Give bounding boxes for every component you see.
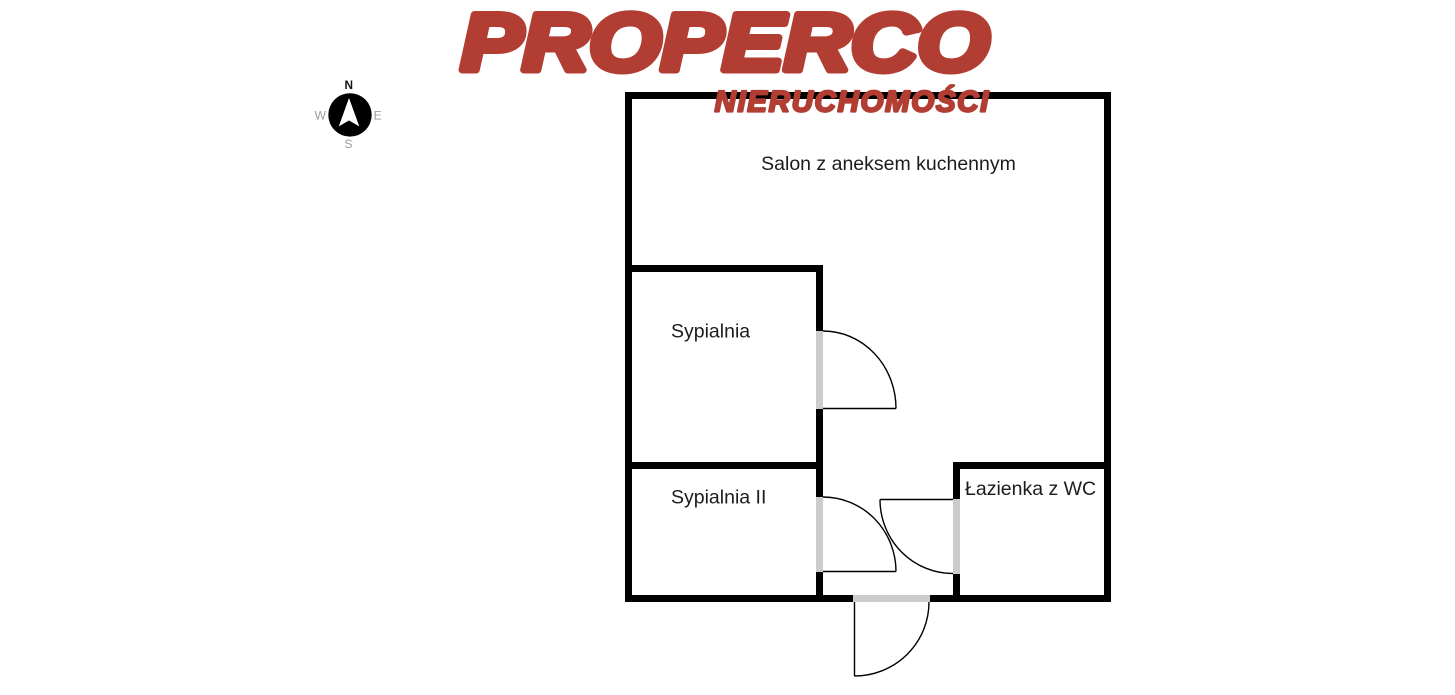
svg-text:Salon z aneksem kuchennym: Salon z aneksem kuchennym xyxy=(761,153,1016,175)
svg-text:W: W xyxy=(315,109,327,123)
svg-text:E: E xyxy=(374,109,382,123)
svg-text:N: N xyxy=(345,78,354,92)
svg-text:PROPERCO: PROPERCO xyxy=(461,0,989,88)
svg-text:Sypialnia II: Sypialnia II xyxy=(671,487,766,509)
svg-text:NIERUCHOMOŚCI: NIERUCHOMOŚCI xyxy=(715,84,990,118)
svg-text:S: S xyxy=(344,137,352,151)
svg-text:Łazienka z WC: Łazienka z WC xyxy=(965,478,1096,500)
svg-text:Sypialnia: Sypialnia xyxy=(671,321,750,343)
